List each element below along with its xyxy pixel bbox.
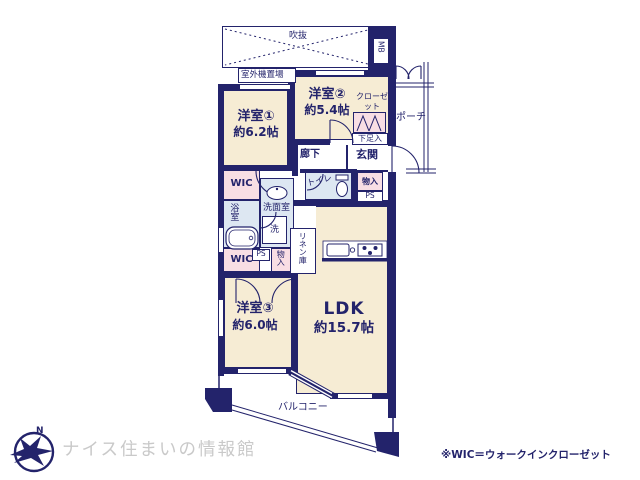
ldk-name-label: LDK [300, 300, 388, 320]
storage-upper-label: 物入 [357, 177, 383, 186]
wall [294, 140, 330, 145]
room3-size-label: 約6.0帖 [215, 319, 295, 333]
meter-box-label: MB [376, 41, 385, 53]
washroom-label: 洗面室 [263, 203, 290, 213]
balcony-label: バルコニー [278, 402, 328, 414]
porch-label: ポーチ [396, 112, 426, 124]
window [316, 70, 364, 76]
shoe-storage-label: 下足入 [352, 134, 388, 143]
room1-name-label: 洋室① [216, 110, 296, 125]
ldk-size-label: 約15.7帖 [300, 321, 388, 337]
void-label: 吹抜 [287, 31, 309, 41]
wic-note: ※WIC＝ウォークインクローゼット [441, 449, 611, 461]
room3-name-label: 洋室③ [215, 302, 295, 317]
entrance-step-line [346, 145, 348, 172]
floor-plan: 吹抜 MB 室外機置場 洋室① 約6.2帖 洋室② 約5.4帖 洋室③ 約6.0… [0, 0, 640, 480]
window [338, 393, 372, 399]
hallway-area [294, 204, 316, 230]
hallway-label: 廊下 [300, 149, 320, 161]
entrance-step-line [348, 170, 388, 172]
wic-upper-label: WIC [223, 178, 260, 190]
wall [388, 70, 396, 146]
room2-name-label: 洋室② [292, 88, 362, 103]
wall [218, 165, 294, 171]
bathroom-label: 浴室 [228, 203, 238, 221]
window [240, 84, 290, 90]
storage-lower-label: 物入 [276, 250, 285, 266]
wall [300, 169, 352, 173]
balcony-left-pillar [205, 388, 232, 412]
window [238, 368, 286, 374]
logo-letter: N [36, 426, 44, 436]
logo-text: ナイス住まいの情報館 [62, 440, 256, 460]
balcony-right-pillar [374, 432, 399, 457]
room2-size-label: 約5.4帖 [292, 104, 362, 118]
outdoor-unit-label: 室外機置場 [241, 71, 284, 81]
closet-label: クローゼット [356, 92, 388, 111]
pipe-space-lower-label: PS [252, 250, 270, 259]
entrance-label: 玄関 [356, 149, 378, 162]
wall [388, 172, 396, 418]
wall [218, 271, 298, 277]
logo-bird-icon [10, 433, 53, 471]
wall [292, 140, 298, 176]
linen-closet-label: リネン庫 [298, 232, 307, 264]
window [218, 228, 224, 252]
room1-size-label: 約6.2帖 [216, 126, 296, 140]
pipe-space-upper-label: PS [357, 192, 383, 201]
washer-label: 洗 [262, 225, 287, 235]
